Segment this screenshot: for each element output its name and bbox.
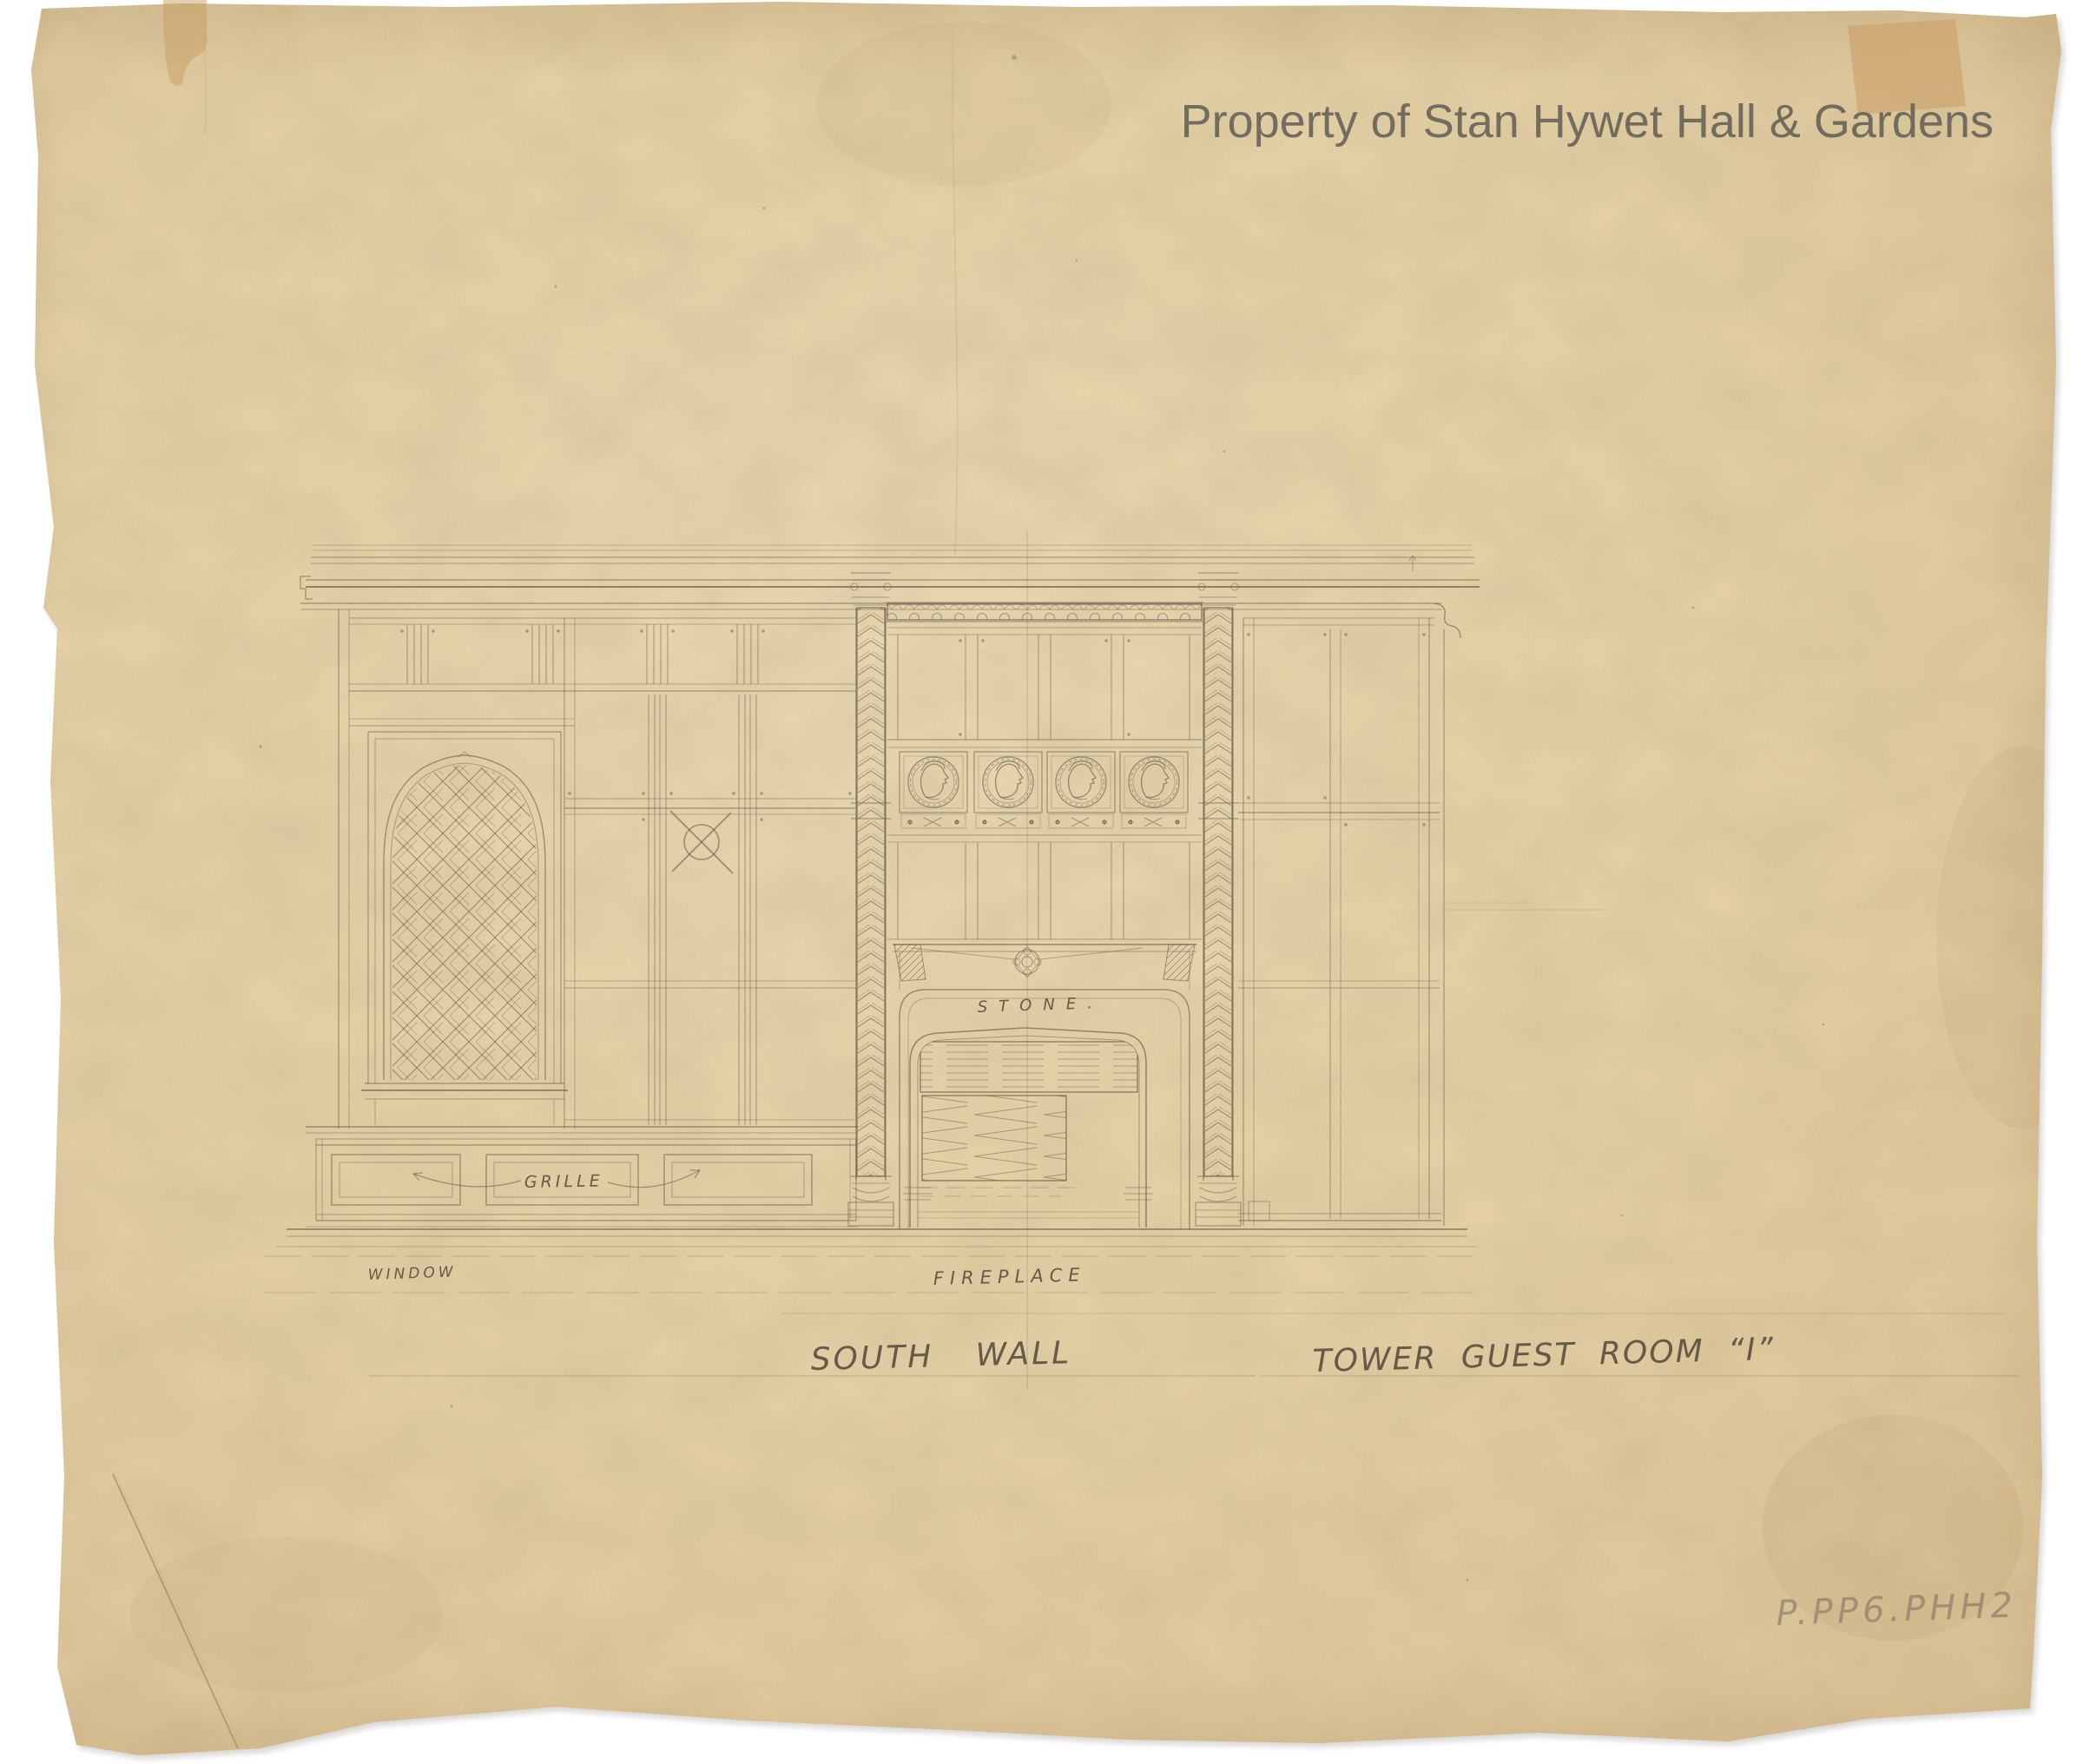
window-label: WINDOW <box>367 1263 456 1284</box>
paper-sheet <box>0 0 2083 1764</box>
scanned-drawing-page: WINDOW FIREPLACE GRILLE STONE. SOUTH WAL… <box>0 0 2083 1764</box>
south-wall-title: SOUTH WALL <box>810 1335 1072 1378</box>
fireplace-label: FIREPLACE <box>933 1264 1086 1289</box>
watermark-text: Property of Stan Hywet Hall & Gardens <box>1181 95 1994 148</box>
catalog-number: P.PP6.PHH2 <box>1776 1585 2018 1634</box>
grille-label: GRILLE <box>524 1171 603 1192</box>
